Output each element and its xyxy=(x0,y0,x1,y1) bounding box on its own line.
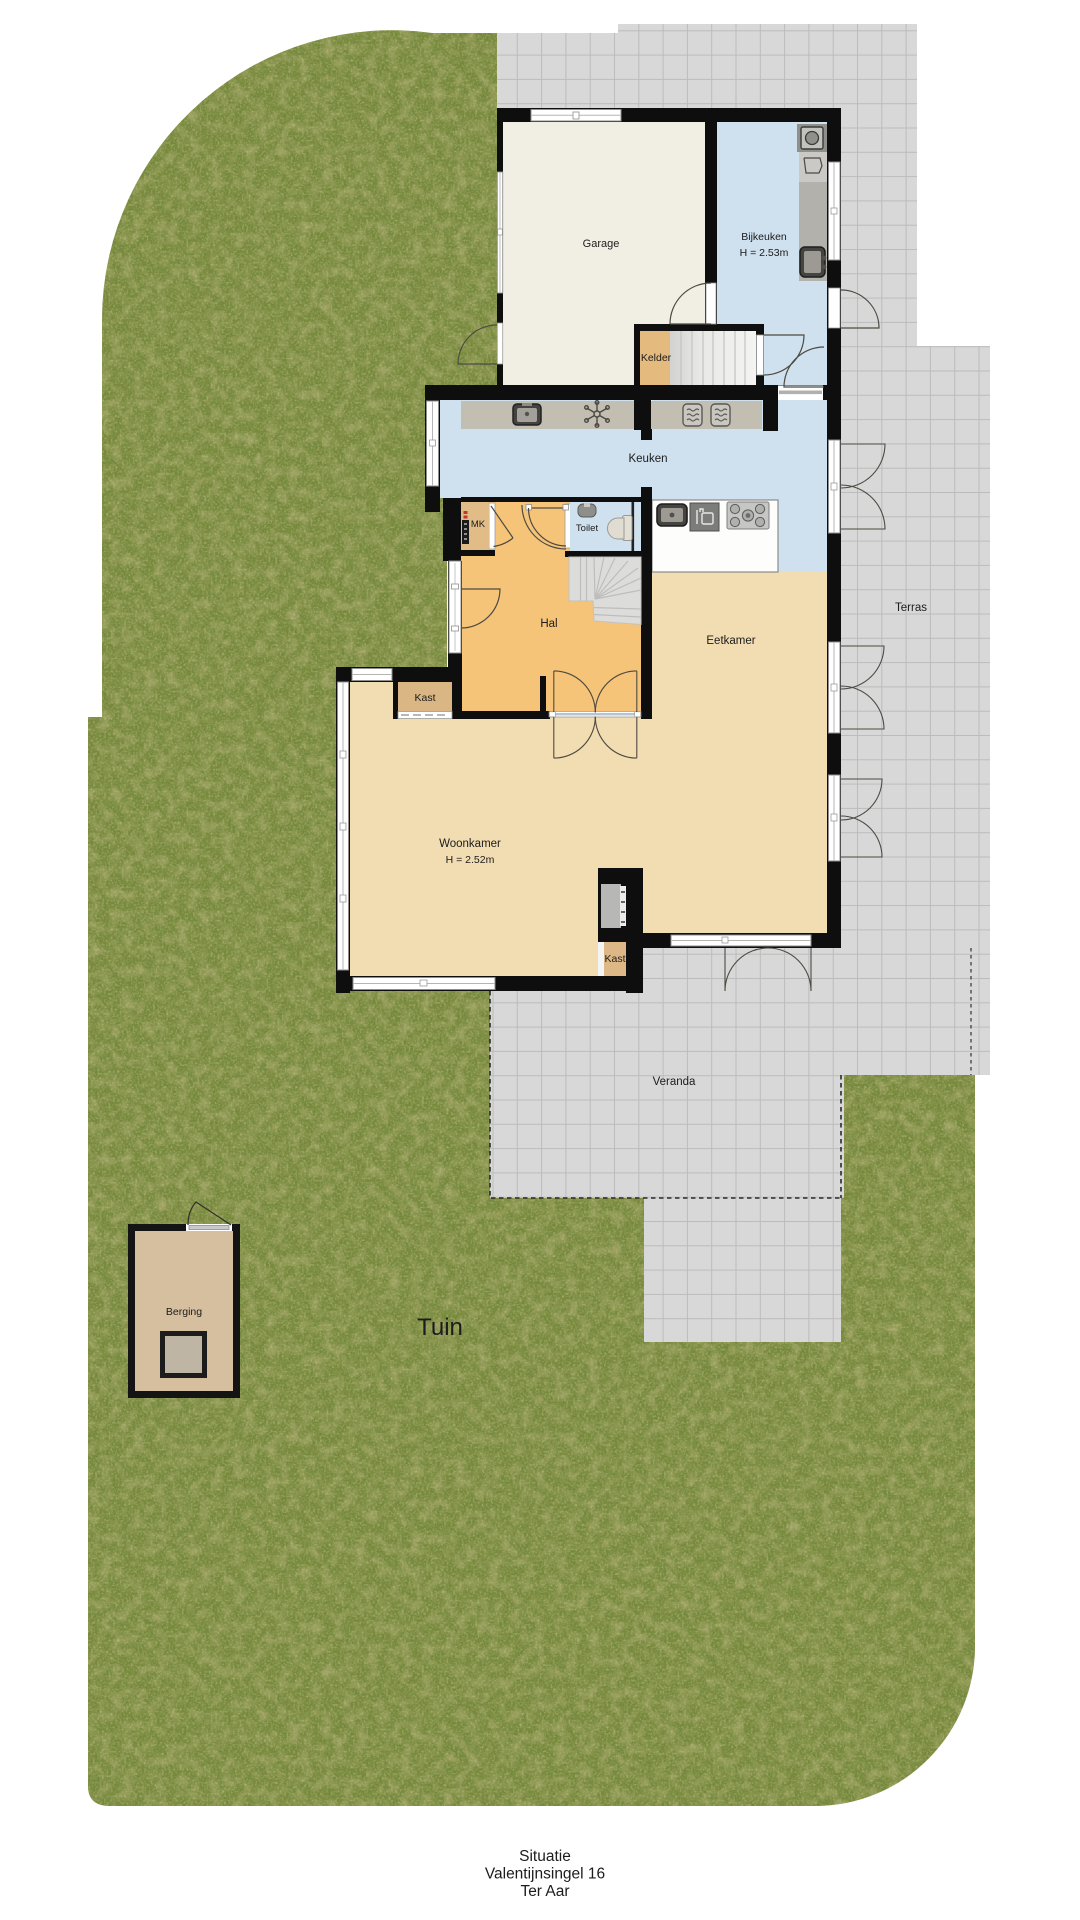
svg-text:Berging: Berging xyxy=(166,1306,202,1318)
svg-text:Eetkamer: Eetkamer xyxy=(706,635,755,647)
svg-text:Garage: Garage xyxy=(583,238,620,250)
svg-text:MK: MK xyxy=(471,519,486,530)
svg-text:Kast: Kast xyxy=(604,953,625,965)
svg-text:Bijkeuken: Bijkeuken xyxy=(741,231,787,243)
svg-text:H = 2.52m: H = 2.52m xyxy=(446,854,495,866)
svg-text:Keuken: Keuken xyxy=(628,453,667,465)
svg-text:Kast: Kast xyxy=(414,692,435,704)
svg-text:H = 2.53m: H = 2.53m xyxy=(740,247,789,259)
svg-text:Valentijnsingel 16: Valentijnsingel 16 xyxy=(485,1866,605,1883)
svg-text:Toilet: Toilet xyxy=(576,523,599,534)
svg-text:Tuin: Tuin xyxy=(417,1314,463,1341)
svg-text:Situatie: Situatie xyxy=(519,1848,571,1865)
svg-text:Hal: Hal xyxy=(540,618,557,630)
svg-text:Ter Aar: Ter Aar xyxy=(520,1883,569,1900)
svg-text:Terras: Terras xyxy=(895,602,927,614)
svg-text:Kelder: Kelder xyxy=(641,352,672,364)
svg-text:Veranda: Veranda xyxy=(653,1076,696,1088)
svg-text:Woonkamer: Woonkamer xyxy=(439,838,501,850)
